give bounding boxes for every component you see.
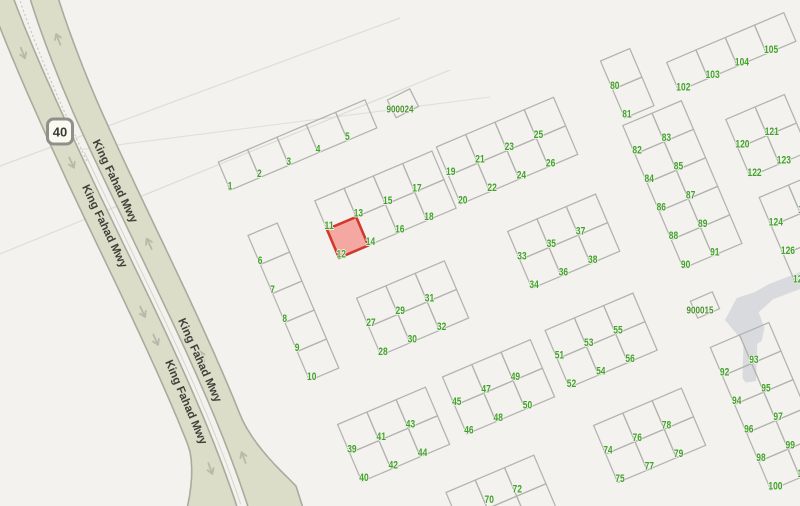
svg-text:2: 2 xyxy=(257,168,262,180)
svg-text:86: 86 xyxy=(657,202,666,214)
svg-text:23: 23 xyxy=(505,141,514,153)
svg-text:9: 9 xyxy=(295,342,300,354)
svg-text:6: 6 xyxy=(258,255,263,267)
svg-text:19: 19 xyxy=(446,166,455,178)
svg-text:77: 77 xyxy=(645,461,654,473)
svg-text:81: 81 xyxy=(622,109,631,121)
svg-text:39: 39 xyxy=(347,444,356,456)
svg-text:40: 40 xyxy=(53,125,67,140)
svg-text:1: 1 xyxy=(228,181,233,193)
svg-text:56: 56 xyxy=(625,353,634,365)
svg-text:26: 26 xyxy=(546,157,555,169)
svg-text:92: 92 xyxy=(720,366,729,378)
svg-text:40: 40 xyxy=(359,472,368,484)
svg-text:102: 102 xyxy=(676,81,690,93)
svg-text:35: 35 xyxy=(547,238,556,250)
svg-text:36: 36 xyxy=(559,267,568,279)
svg-text:33: 33 xyxy=(517,250,526,262)
svg-text:30: 30 xyxy=(408,333,417,345)
svg-text:16: 16 xyxy=(395,224,404,236)
svg-text:83: 83 xyxy=(662,132,671,144)
svg-text:50: 50 xyxy=(523,400,532,412)
svg-text:96: 96 xyxy=(744,424,753,436)
svg-text:22: 22 xyxy=(487,182,496,194)
svg-text:75: 75 xyxy=(615,473,624,485)
svg-text:900024: 900024 xyxy=(387,105,414,116)
svg-text:74: 74 xyxy=(603,445,613,457)
svg-text:55: 55 xyxy=(613,325,622,337)
svg-text:54: 54 xyxy=(596,366,606,378)
svg-text:87: 87 xyxy=(686,189,695,201)
svg-text:51: 51 xyxy=(555,349,564,361)
svg-text:11: 11 xyxy=(324,220,333,232)
svg-text:18: 18 xyxy=(424,211,433,223)
svg-text:123: 123 xyxy=(777,155,791,167)
svg-text:900015: 900015 xyxy=(687,306,714,317)
svg-text:31: 31 xyxy=(425,292,434,304)
svg-text:88: 88 xyxy=(669,230,678,242)
svg-text:89: 89 xyxy=(698,218,707,230)
svg-text:32: 32 xyxy=(437,321,446,333)
svg-text:84: 84 xyxy=(645,173,655,185)
svg-text:126: 126 xyxy=(781,245,795,257)
svg-text:121: 121 xyxy=(765,126,779,138)
svg-text:17: 17 xyxy=(412,183,421,195)
svg-text:42: 42 xyxy=(389,460,398,472)
svg-text:13: 13 xyxy=(354,207,363,219)
svg-text:46: 46 xyxy=(464,425,473,437)
svg-text:15: 15 xyxy=(383,195,392,207)
svg-text:103: 103 xyxy=(706,69,720,81)
svg-text:49: 49 xyxy=(511,371,520,383)
svg-text:21: 21 xyxy=(475,154,484,166)
svg-text:47: 47 xyxy=(481,384,490,396)
svg-text:128: 128 xyxy=(793,274,800,286)
svg-text:45: 45 xyxy=(452,396,461,408)
svg-text:24: 24 xyxy=(517,170,527,182)
svg-text:53: 53 xyxy=(584,337,593,349)
svg-text:52: 52 xyxy=(567,378,576,390)
svg-text:76: 76 xyxy=(633,432,642,444)
svg-text:72: 72 xyxy=(513,484,522,496)
svg-text:95: 95 xyxy=(761,383,770,395)
svg-text:98: 98 xyxy=(756,452,765,464)
svg-text:90: 90 xyxy=(681,259,690,271)
svg-text:122: 122 xyxy=(748,167,762,179)
svg-text:85: 85 xyxy=(674,161,683,173)
svg-text:120: 120 xyxy=(735,138,749,150)
svg-text:14: 14 xyxy=(366,236,376,248)
svg-text:97: 97 xyxy=(773,411,782,423)
svg-text:48: 48 xyxy=(494,412,503,424)
svg-text:105: 105 xyxy=(764,44,778,56)
svg-text:29: 29 xyxy=(396,305,405,317)
svg-text:37: 37 xyxy=(576,226,585,238)
svg-text:100: 100 xyxy=(768,481,782,493)
svg-text:80: 80 xyxy=(610,80,619,92)
svg-text:91: 91 xyxy=(710,246,719,258)
svg-text:8: 8 xyxy=(282,313,287,325)
svg-text:34: 34 xyxy=(529,279,539,291)
svg-text:99: 99 xyxy=(786,440,795,452)
svg-text:28: 28 xyxy=(378,346,387,358)
svg-text:4: 4 xyxy=(316,143,321,155)
svg-text:7: 7 xyxy=(270,284,275,296)
svg-text:38: 38 xyxy=(588,254,597,266)
svg-text:12: 12 xyxy=(337,248,346,260)
svg-text:27: 27 xyxy=(366,317,375,329)
svg-text:79: 79 xyxy=(674,448,683,460)
svg-text:3: 3 xyxy=(286,156,291,168)
svg-text:70: 70 xyxy=(485,494,494,506)
svg-text:5: 5 xyxy=(345,131,350,143)
svg-text:78: 78 xyxy=(662,420,671,432)
svg-text:104: 104 xyxy=(735,57,750,69)
svg-text:93: 93 xyxy=(749,354,758,366)
svg-text:44: 44 xyxy=(418,447,428,459)
svg-text:94: 94 xyxy=(732,395,742,407)
svg-text:20: 20 xyxy=(458,195,467,207)
svg-text:124: 124 xyxy=(769,217,784,229)
svg-text:25: 25 xyxy=(534,129,543,141)
svg-text:82: 82 xyxy=(632,145,641,157)
svg-text:41: 41 xyxy=(377,431,386,443)
svg-text:43: 43 xyxy=(406,419,415,431)
svg-text:10: 10 xyxy=(307,371,316,383)
